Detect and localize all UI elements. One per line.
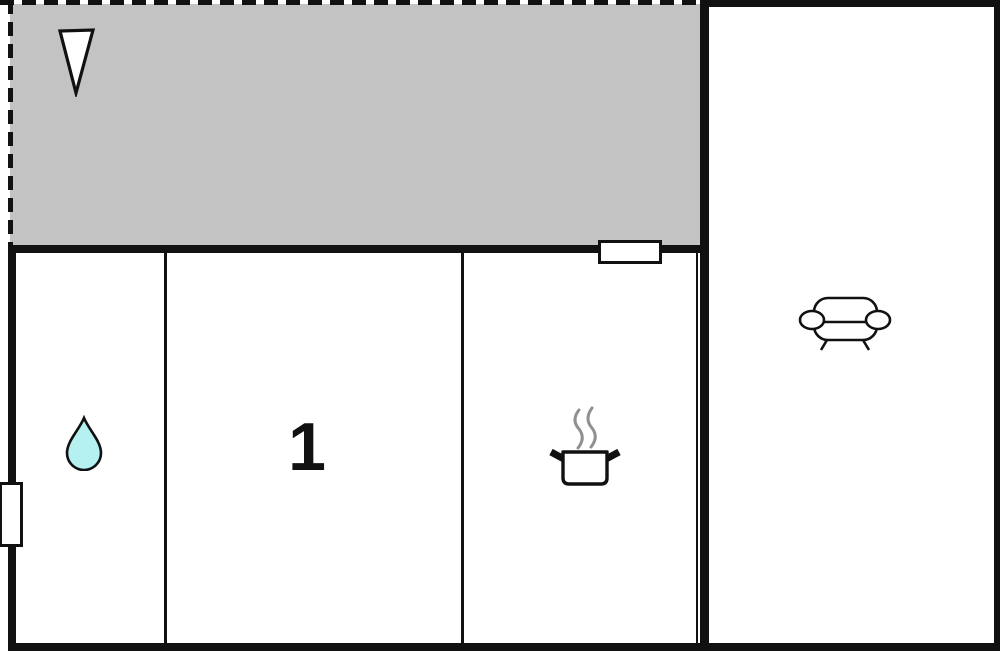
cooking-pot-icon <box>546 404 624 490</box>
left-wall-window <box>0 482 23 547</box>
north-arrow-icon <box>56 27 98 97</box>
terrace-dashed-border-left <box>8 0 13 250</box>
bedroom-number-label: 1 <box>257 406 357 488</box>
partition-bathroom-bedroom <box>164 253 167 643</box>
sofa-icon <box>797 294 893 352</box>
wall-living-room-left <box>700 0 709 651</box>
wall-living-room-right <box>994 0 1000 651</box>
water-drop-icon <box>64 415 104 471</box>
partition-bedroom-kitchen <box>461 253 464 643</box>
floor-plan: 1 <box>0 0 1000 651</box>
terrace-dashed-border-top <box>0 0 702 5</box>
terrace-window <box>598 240 662 264</box>
wall-outer-left <box>8 245 16 651</box>
wall-outer-bottom <box>8 643 1000 651</box>
wall-living-room-top <box>700 0 1000 7</box>
terrace-area <box>10 4 701 249</box>
partition-kitchen-right <box>696 253 698 643</box>
